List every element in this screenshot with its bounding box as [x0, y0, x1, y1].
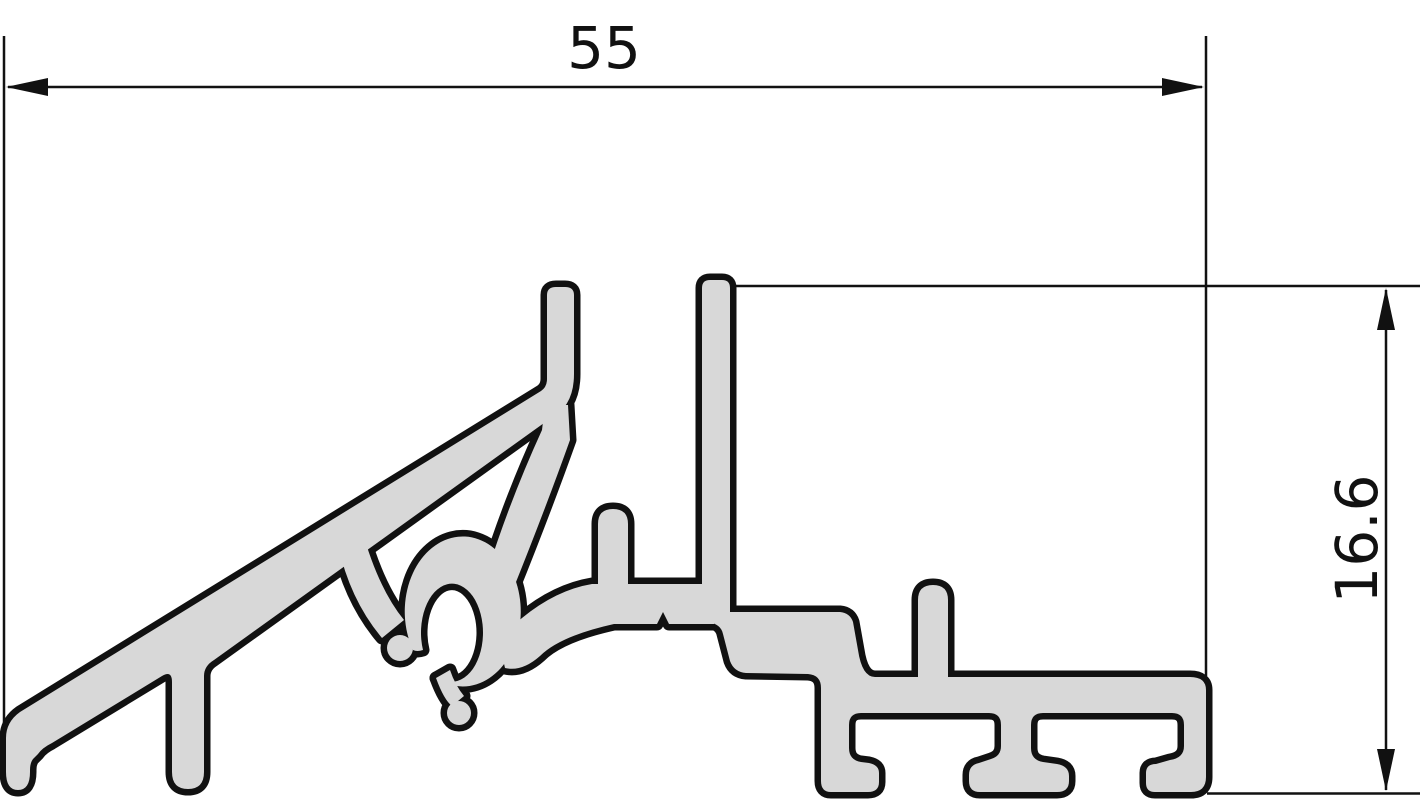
arrow-left-icon: [6, 78, 48, 96]
profile-shape-fill: [6, 280, 1206, 792]
arrow-up-icon: [1377, 288, 1395, 330]
drawing-canvas: 55 16.6: [0, 0, 1420, 800]
width-dimension-label: 55: [567, 14, 641, 82]
arrow-right-icon: [1162, 78, 1204, 96]
height-dimension-label: 16.6: [1323, 474, 1391, 603]
profile-drawing: 55 16.6: [0, 0, 1420, 800]
arrow-down-icon: [1377, 749, 1395, 791]
